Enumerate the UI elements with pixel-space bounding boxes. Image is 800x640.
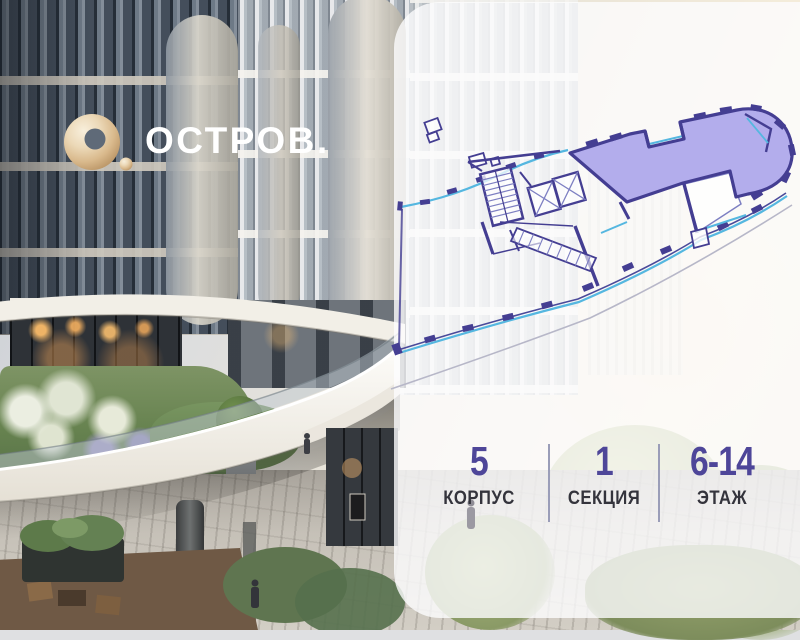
stat-section: 1 СЕКЦИЯ	[550, 440, 658, 522]
staircase	[480, 167, 523, 226]
building-label: КОРПУС	[418, 488, 539, 510]
unit-info-bar: 5 КОРПУС 1 СЕКЦИЯ 6-14 ЭТАЖ	[410, 440, 786, 522]
section-number: 1	[595, 440, 613, 483]
brand-name: ОСТРОВ.	[145, 120, 330, 162]
floor-plan	[0, 0, 800, 630]
building-number: 5	[470, 440, 488, 483]
stat-building: 5 КОРПУС	[410, 440, 548, 522]
stat-floors: 6-14 ЭТАЖ	[660, 440, 784, 522]
o-ring-with-dot-icon	[52, 106, 142, 178]
floors-label: ЭТАЖ	[667, 488, 776, 510]
brand-logo: ОСТРОВ.	[52, 106, 392, 182]
floors-range: 6-14	[690, 440, 754, 483]
highlighted-unit[interactable]	[570, 109, 792, 202]
section-label: СЕКЦИЯ	[556, 488, 651, 510]
